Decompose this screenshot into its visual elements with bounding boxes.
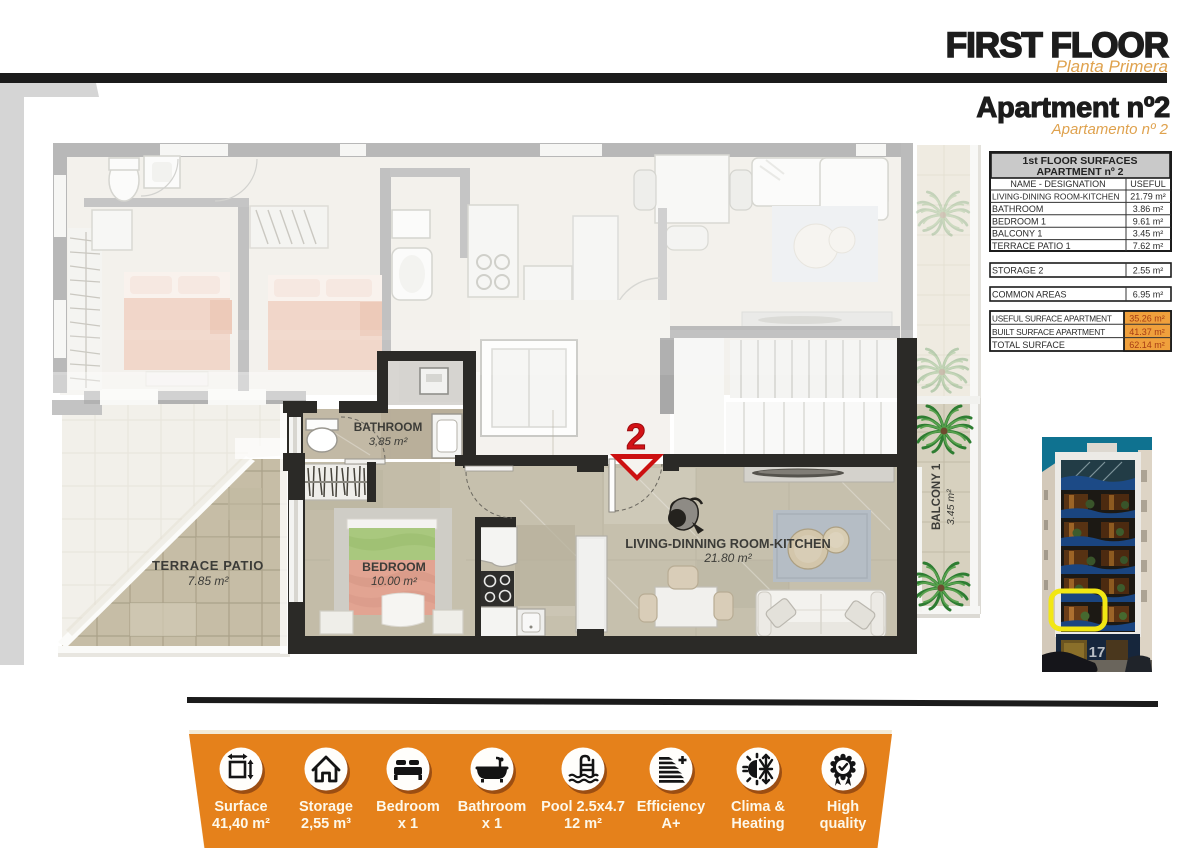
svg-text:High: High	[827, 799, 859, 815]
svg-text:LIVING-DINING ROOM-KITCHEN: LIVING-DINING ROOM-KITCHEN	[992, 192, 1120, 202]
svg-text:Apartment nº2: Apartment nº2	[976, 92, 1170, 124]
svg-text:Bedroom: Bedroom	[376, 799, 440, 815]
svg-text:NAME - DESIGNATION: NAME - DESIGNATION	[1010, 179, 1105, 189]
svg-text:3.45 m²: 3.45 m²	[945, 489, 957, 525]
svg-text:Clima &: Clima &	[731, 799, 786, 815]
svg-text:21.79 m²: 21.79 m²	[1130, 192, 1166, 202]
svg-text:LIVING-DINNING ROOM-KITCHEN: LIVING-DINNING ROOM-KITCHEN	[625, 536, 830, 551]
svg-text:TOTAL SURFACE: TOTAL SURFACE	[992, 340, 1065, 350]
svg-text:TERRACE PATIO: TERRACE PATIO	[152, 558, 264, 573]
svg-text:BALCONY 1: BALCONY 1	[931, 463, 943, 530]
svg-text:Efficiency: Efficiency	[637, 799, 706, 815]
svg-text:2: 2	[626, 416, 646, 457]
svg-text:Pool 2.5x4.7: Pool 2.5x4.7	[541, 799, 625, 815]
svg-text:USEFUL: USEFUL	[1130, 179, 1166, 189]
svg-text:x 1: x 1	[482, 816, 502, 832]
svg-text:BATHROOM: BATHROOM	[354, 420, 423, 434]
svg-text:Storage: Storage	[299, 799, 353, 815]
svg-text:USEFUL SURFACE APARTMENT: USEFUL SURFACE APARTMENT	[992, 315, 1112, 324]
svg-text:17: 17	[1089, 644, 1106, 661]
svg-text:BEDROOM: BEDROOM	[362, 560, 426, 574]
svg-text:Bathroom: Bathroom	[458, 799, 526, 815]
svg-text:41,40 m²: 41,40 m²	[212, 816, 270, 832]
svg-text:10.00 m²: 10.00 m²	[371, 575, 418, 588]
svg-text:9.61 m²: 9.61 m²	[1133, 216, 1164, 226]
svg-text:TERRACE PATIO 1: TERRACE PATIO 1	[992, 241, 1071, 251]
svg-text:3.86 m²: 3.86 m²	[1133, 204, 1164, 214]
svg-text:6.95 m²: 6.95 m²	[1133, 290, 1164, 300]
svg-text:21.80 m²: 21.80 m²	[703, 551, 752, 565]
svg-text:12 m²: 12 m²	[564, 816, 602, 832]
svg-text:41.37 m²: 41.37 m²	[1129, 327, 1165, 337]
svg-text:A+: A+	[662, 816, 681, 832]
svg-text:BATHROOM: BATHROOM	[992, 204, 1043, 214]
svg-text:62.14 m²: 62.14 m²	[1129, 340, 1165, 350]
svg-text:3,85 m²: 3,85 m²	[369, 436, 409, 448]
svg-text:2.55 m²: 2.55 m²	[1133, 266, 1164, 276]
svg-text:BEDROOM 1: BEDROOM 1	[992, 216, 1046, 226]
svg-text:Surface: Surface	[214, 799, 267, 815]
svg-text:x 1: x 1	[398, 816, 418, 832]
svg-text:STORAGE 2: STORAGE 2	[992, 266, 1043, 276]
svg-text:7.62 m²: 7.62 m²	[1133, 241, 1164, 251]
svg-text:Apartamento nº 2: Apartamento nº 2	[1051, 121, 1169, 138]
svg-text:BALCONY 1: BALCONY 1	[992, 229, 1042, 239]
svg-text:7.85 m²: 7.85 m²	[188, 574, 230, 588]
svg-text:2,55 m³: 2,55 m³	[301, 816, 351, 832]
svg-text:3.45 m²: 3.45 m²	[1133, 229, 1164, 239]
svg-text:35.26 m²: 35.26 m²	[1129, 314, 1165, 324]
svg-text:COMMON AREAS: COMMON AREAS	[992, 290, 1067, 300]
svg-text:BUILT SURFACE APARTMENT: BUILT SURFACE APARTMENT	[992, 327, 1105, 337]
svg-text:Heating: Heating	[731, 816, 784, 832]
svg-text:quality: quality	[820, 816, 867, 832]
svg-text:APARTMENT nº 2: APARTMENT nº 2	[1036, 166, 1123, 178]
